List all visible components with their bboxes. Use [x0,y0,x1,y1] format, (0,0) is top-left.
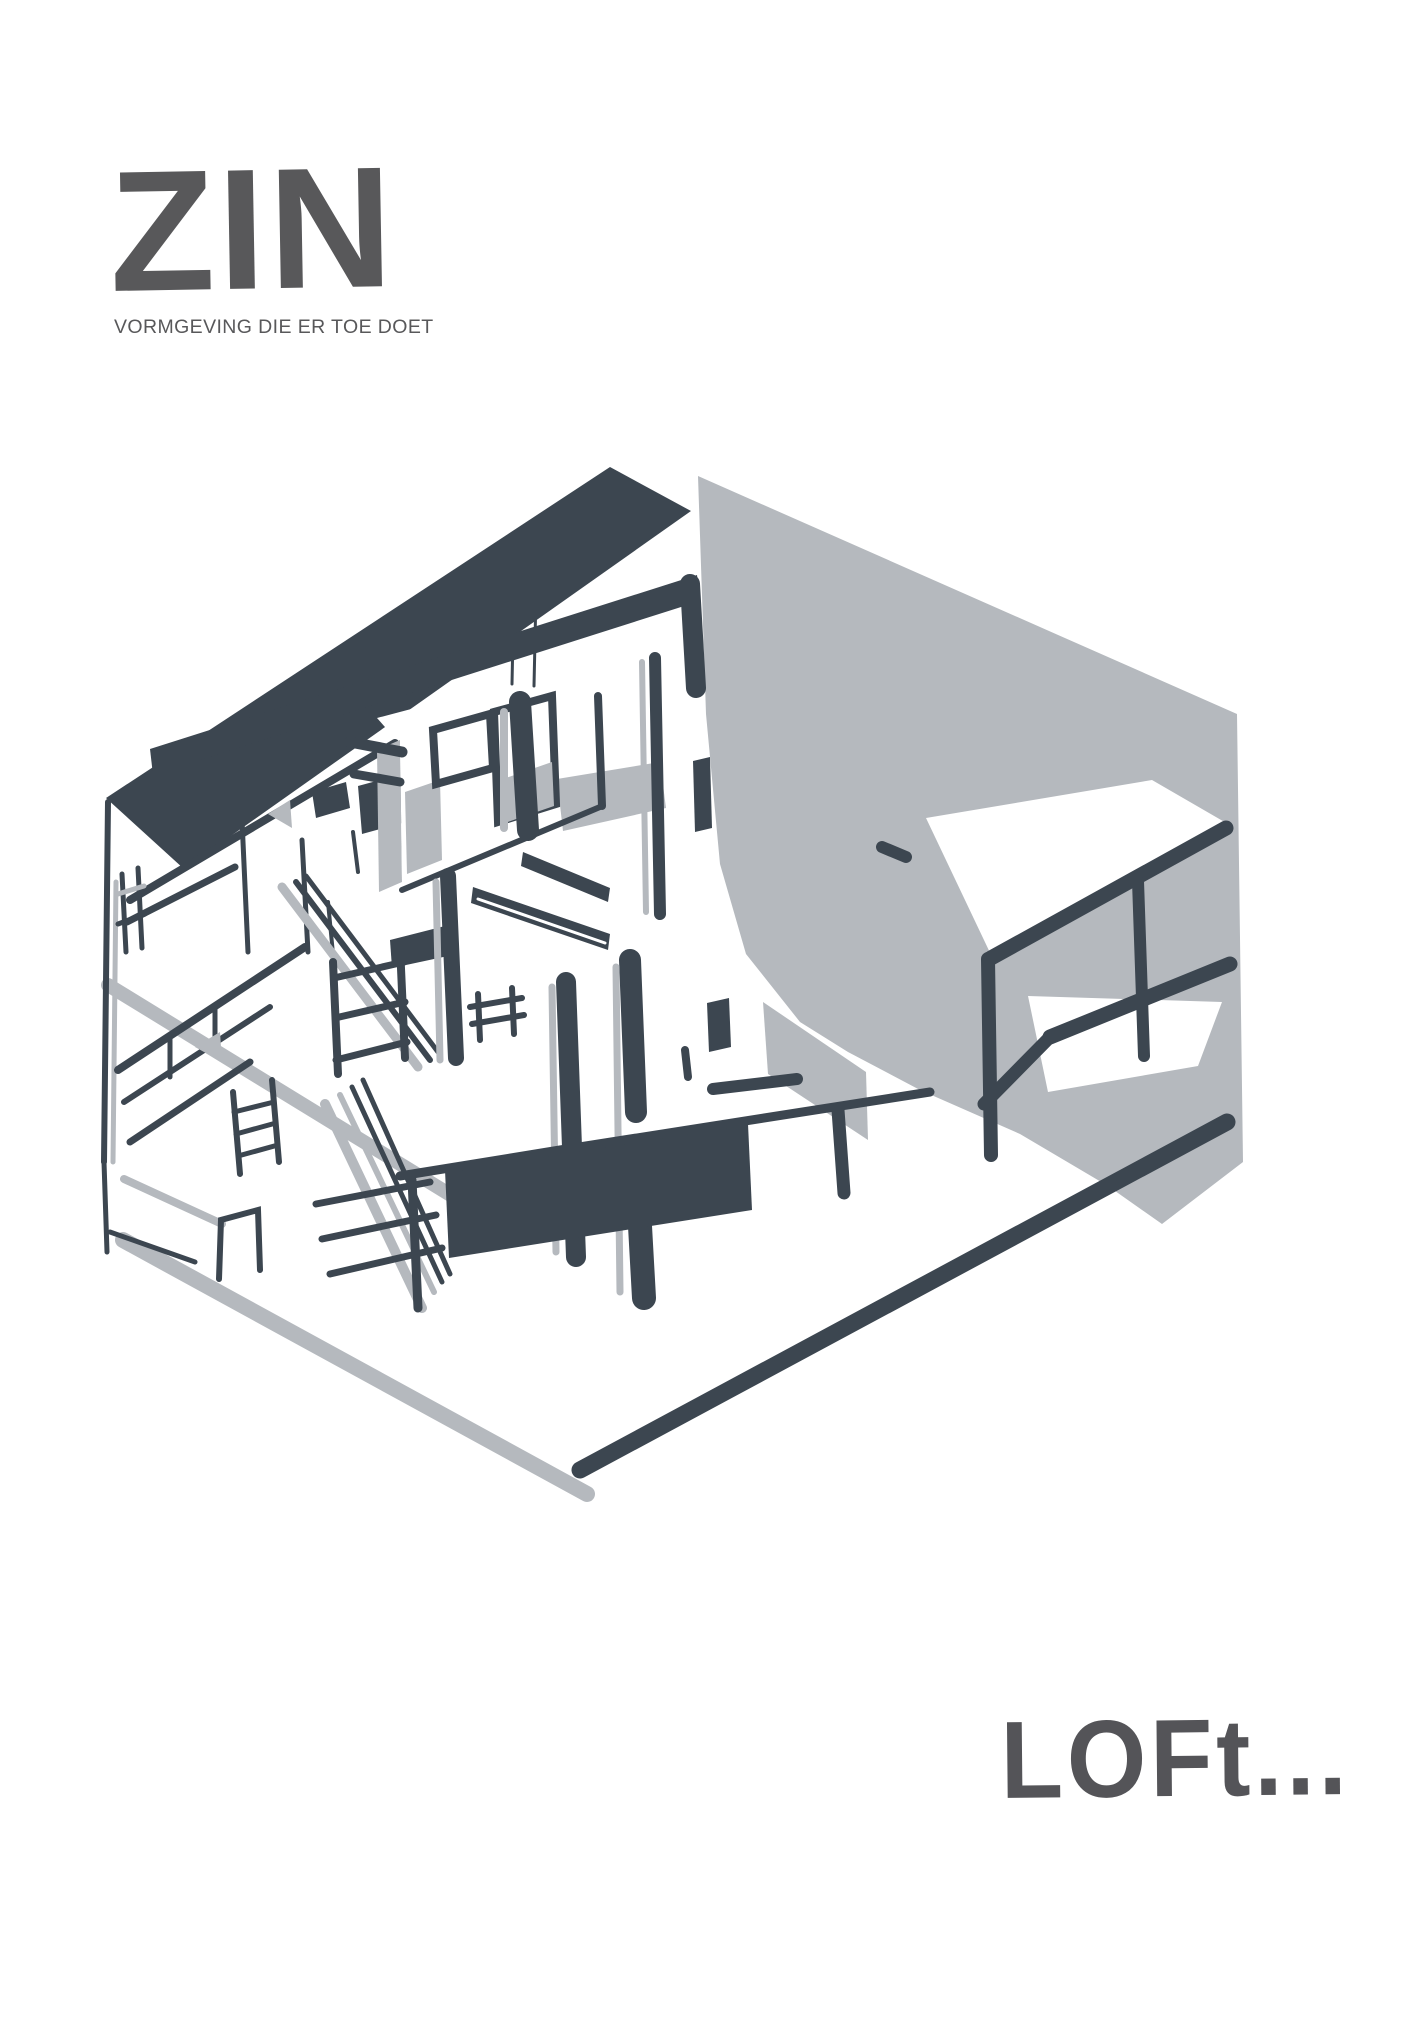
poster-page: ZIN VORMGEVING DIE ER TOE DOET [0,0,1428,2028]
zin-logo-wordmark: ZIN [108,141,397,318]
loft-sketch-svg [100,462,1265,1567]
loft-axonometric-illustration [100,462,1265,1567]
zin-logo-tagline: VORMGEVING DIE ER TOE DOET [114,317,434,338]
loft-wordmark: LOFt... [1000,1702,1351,1816]
